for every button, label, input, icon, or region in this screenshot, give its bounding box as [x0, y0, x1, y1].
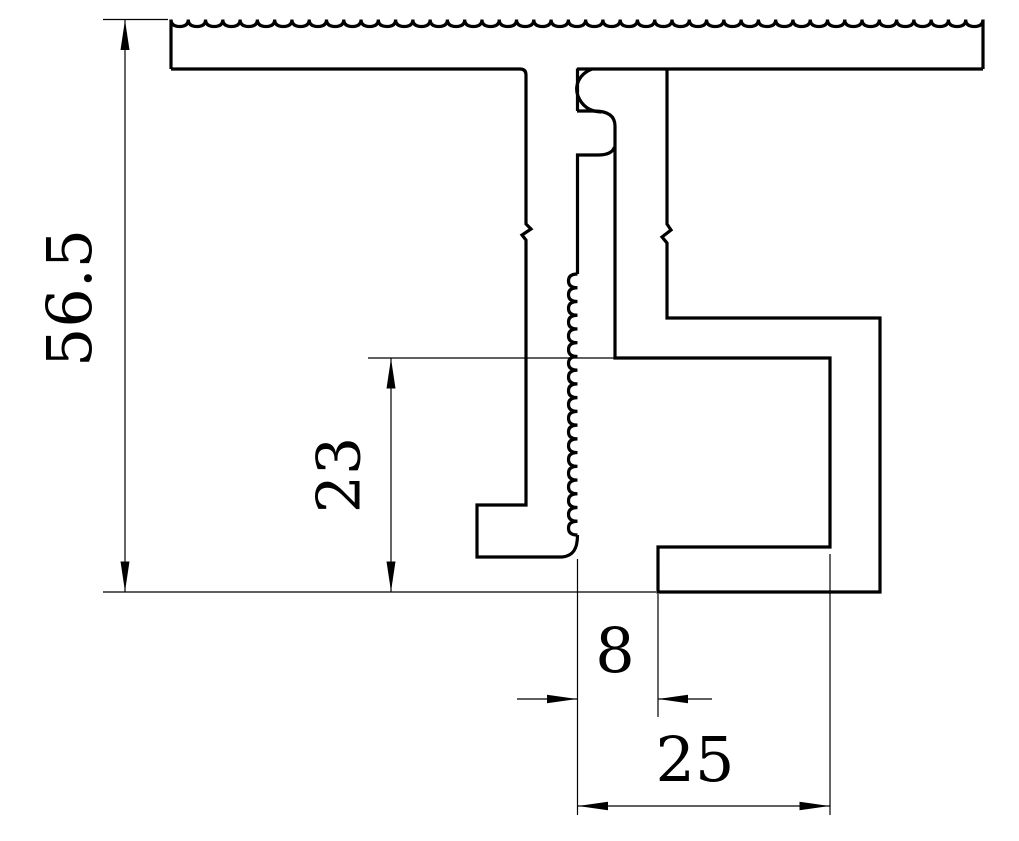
profile-cross-section-drawing: 56.5 23 8 [0, 0, 1019, 841]
drawing-canvas: 56.5 23 8 [0, 0, 1019, 841]
profile-outline [171, 20, 983, 593]
arrowhead-down [387, 562, 396, 592]
dim-label-inner-leg-height: 23 [305, 437, 375, 513]
arrowhead-right [547, 695, 577, 703]
arrowhead-down [121, 562, 130, 592]
arrowhead-left [578, 802, 608, 810]
arrowhead-up [387, 359, 396, 389]
hook-s-curve [577, 69, 601, 112]
right-wall-and-steps [577, 69, 880, 592]
dimensions: 56.5 23 8 [33, 20, 830, 816]
dim-label-slot-width: 8 [595, 614, 634, 687]
arrowhead-up [121, 20, 130, 50]
arrowhead-left [658, 695, 688, 703]
left-wall-serrated-face [569, 274, 578, 535]
dim-label-overall-height: 56.5 [33, 229, 106, 367]
left-wall-face-upper [578, 147, 615, 274]
arrowhead-right [800, 802, 830, 810]
top-serrated-edge [171, 20, 983, 27]
dim-label-base-width: 25 [656, 723, 735, 796]
